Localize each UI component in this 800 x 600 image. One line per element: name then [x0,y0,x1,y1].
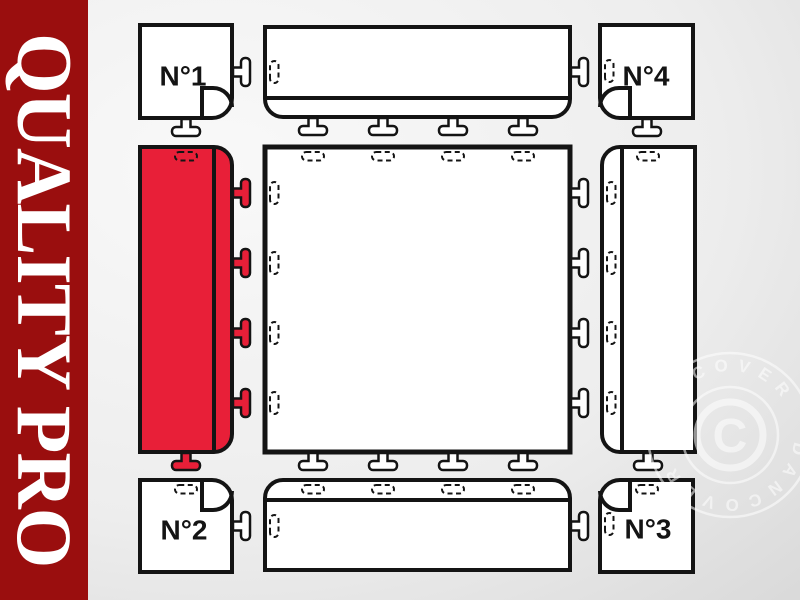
connector-tab [299,453,327,470]
connector-tab [571,319,588,347]
corner-label-1: N°1 [160,61,207,92]
connector-tab [172,119,200,136]
corner-label-3: N°3 [625,514,672,545]
corner-piece-2: N°2 [140,480,250,572]
copyright-letter: C [713,410,748,463]
connector-tab [439,453,467,470]
tile-assembly-diagram: N°1 N°4 [0,0,800,600]
connector-tab [233,249,250,277]
connector-tab [369,118,397,135]
connector-tab [233,58,250,86]
bottom-edge-piece [265,480,588,570]
connector-tab [634,453,662,470]
connector-tab [509,118,537,135]
connector-tab [571,58,588,86]
top-edge-piece [265,27,588,135]
connector-tab [571,512,588,540]
connector-tab [571,249,588,277]
connector-tab [172,453,200,470]
connector-tab [571,389,588,417]
connector-tab [233,512,250,540]
connector-tab [633,119,661,136]
left-edge-piece-highlighted [140,147,250,470]
connector-tab [509,453,537,470]
connector-tab [299,118,327,135]
connector-tab [369,453,397,470]
center-tile [265,147,588,470]
connector-tab [233,389,250,417]
corner-label-4: N°4 [623,61,670,92]
connector-tab [233,319,250,347]
corner-piece-4: N°4 [600,25,693,136]
corner-label-2: N°2 [161,515,208,546]
product-diagram-page: QUALITY PRO N°1 [0,0,800,600]
connector-tab [233,179,250,207]
center-tile-outline [265,147,570,452]
connector-tab [571,179,588,207]
corner-piece-1: N°1 [140,25,250,136]
top-edge-outline [265,27,570,117]
connector-tab [439,118,467,135]
left-edge-outline [140,147,232,452]
